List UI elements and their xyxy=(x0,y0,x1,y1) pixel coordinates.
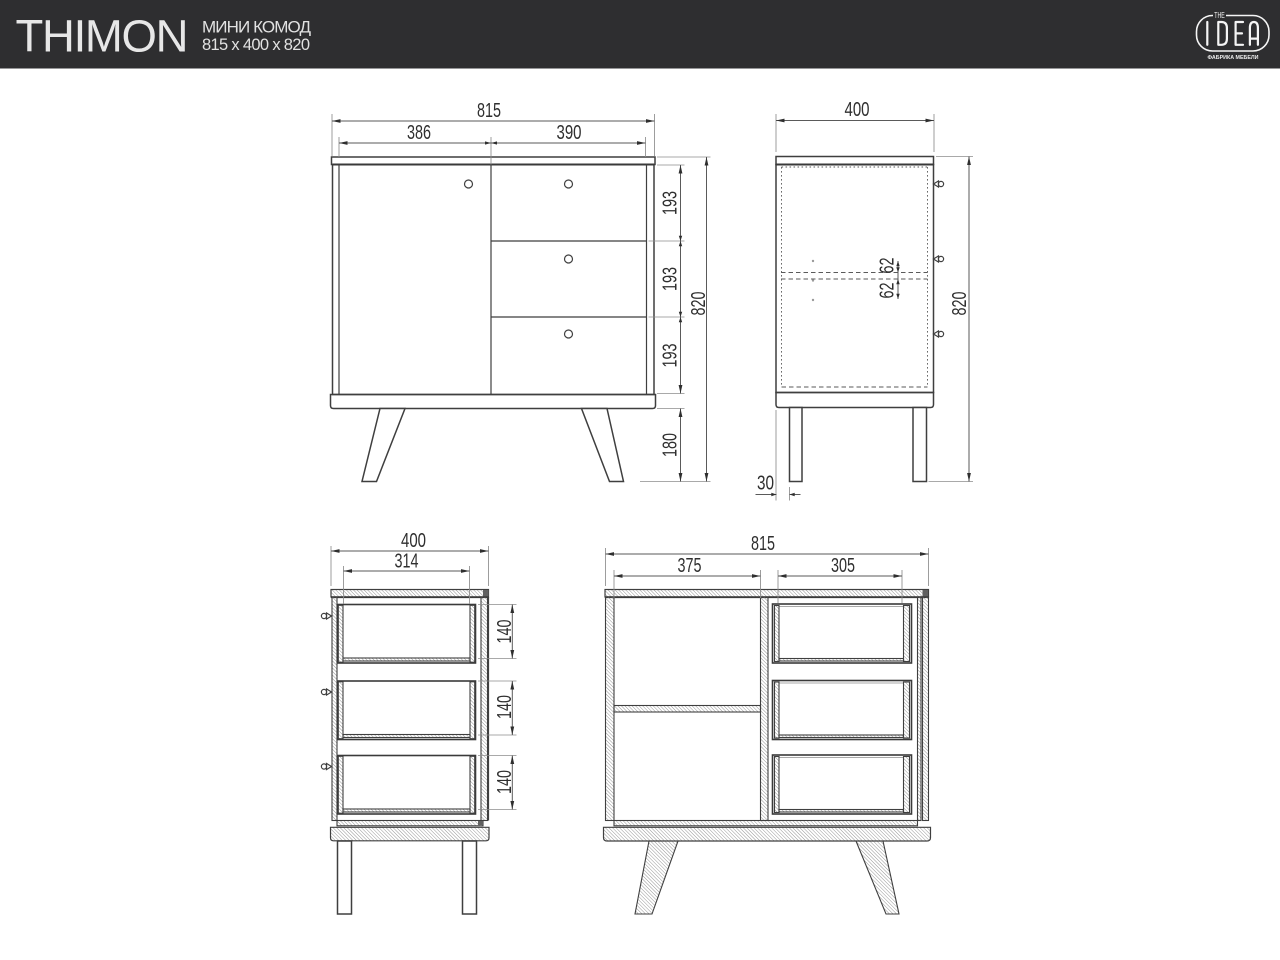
svg-text:305: 305 xyxy=(831,554,855,577)
svg-text:193: 193 xyxy=(659,344,682,368)
svg-text:390: 390 xyxy=(557,121,582,144)
svg-text:400: 400 xyxy=(845,98,870,121)
svg-text:815 x 400 x 820: 815 x 400 x 820 xyxy=(202,36,310,54)
svg-text:180: 180 xyxy=(659,433,682,457)
svg-text:815: 815 xyxy=(477,99,501,122)
svg-text:62: 62 xyxy=(876,258,899,274)
svg-text:375: 375 xyxy=(678,554,702,577)
svg-text:30: 30 xyxy=(757,472,774,495)
svg-text:140: 140 xyxy=(493,620,516,644)
svg-text:815: 815 xyxy=(751,532,775,555)
svg-text:THE: THE xyxy=(1214,10,1225,20)
svg-text:193: 193 xyxy=(659,267,682,291)
svg-text:ФАБРИКА МЕБЕЛИ: ФАБРИКА МЕБЕЛИ xyxy=(1208,55,1259,61)
svg-text:386: 386 xyxy=(407,121,431,144)
svg-text:140: 140 xyxy=(493,770,516,794)
svg-text:820: 820 xyxy=(687,292,710,316)
svg-text:THIMON: THIMON xyxy=(16,11,189,62)
svg-text:193: 193 xyxy=(659,191,682,215)
svg-text:820: 820 xyxy=(948,292,971,316)
svg-text:62: 62 xyxy=(876,283,899,299)
svg-text:140: 140 xyxy=(493,695,516,719)
svg-text:314: 314 xyxy=(395,550,419,573)
svg-text:МИНИ КОМОД: МИНИ КОМОД xyxy=(202,18,311,37)
